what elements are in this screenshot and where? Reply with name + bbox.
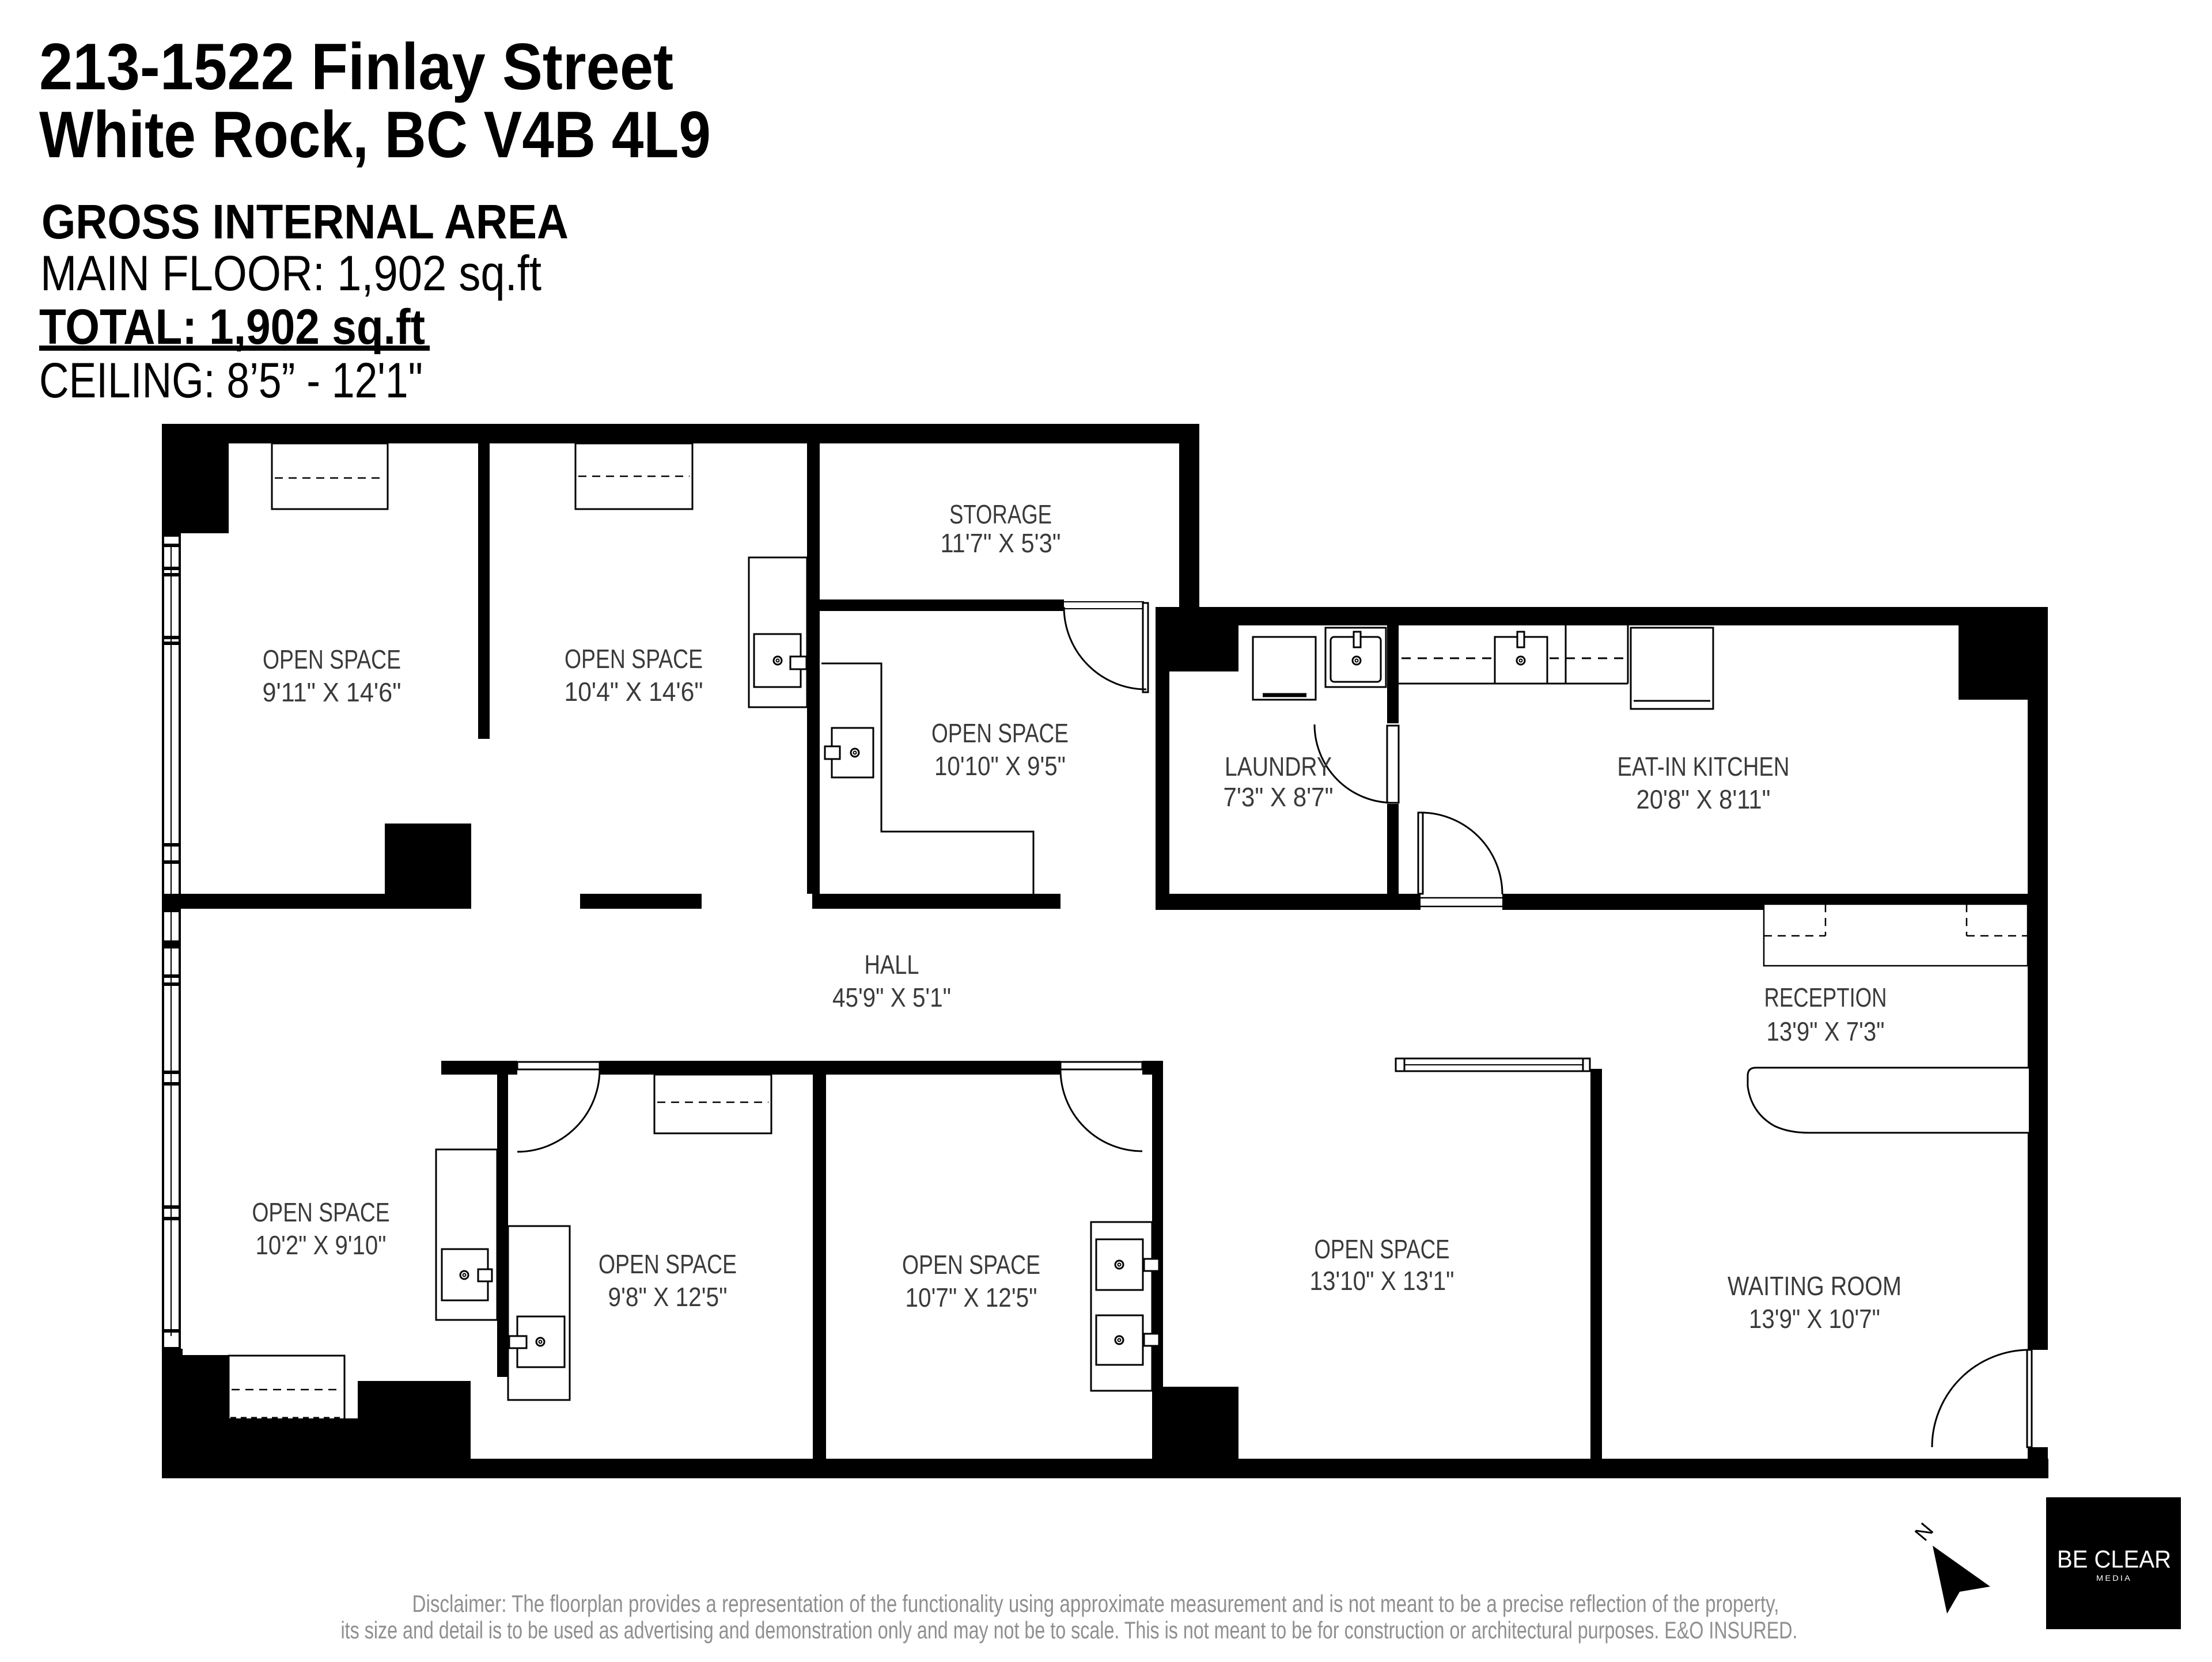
svg-text:13'9" X 7'3": 13'9" X 7'3" <box>1767 1016 1885 1046</box>
svg-text:CEILING: 8’5” - 12'1": CEILING: 8’5” - 12'1" <box>39 353 423 408</box>
svg-text:10'7" X 12'5": 10'7" X 12'5" <box>906 1282 1037 1312</box>
svg-text:GROSS INTERNAL AREA: GROSS INTERNAL AREA <box>41 195 569 249</box>
svg-text:10'2" X 9'10": 10'2" X 9'10" <box>256 1230 387 1260</box>
svg-text:11'7" X 5'3": 11'7" X 5'3" <box>941 528 1061 558</box>
svg-text:10'10" X 9'5": 10'10" X 9'5" <box>934 751 1066 781</box>
svg-text:its size and detail is to be u: its size and detail is to be used as adv… <box>341 1617 1798 1644</box>
svg-text:MAIN FLOOR: 1,902 sq.ft: MAIN FLOOR: 1,902 sq.ft <box>40 246 541 301</box>
svg-text:OPEN SPACE: OPEN SPACE <box>599 1249 737 1279</box>
svg-text:9'8" X 12'5": 9'8" X 12'5" <box>608 1282 728 1312</box>
svg-text:BE CLEAR: BE CLEAR <box>2057 1546 2171 1573</box>
svg-text:13'10" X 13'1": 13'10" X 13'1" <box>1310 1266 1455 1296</box>
svg-text:RECEPTION: RECEPTION <box>1764 982 1887 1012</box>
svg-text:213-1522 Finlay Street: 213-1522 Finlay Street <box>39 31 673 104</box>
svg-text:STORAGE: STORAGE <box>949 499 1052 529</box>
svg-text:Disclaimer: The floorplan prov: Disclaimer: The floorplan provides a rep… <box>412 1590 1779 1617</box>
svg-text:HALL: HALL <box>865 950 919 980</box>
svg-text:LAUNDRY: LAUNDRY <box>1225 752 1332 781</box>
svg-text:OPEN SPACE: OPEN SPACE <box>565 644 703 674</box>
svg-text:OPEN SPACE: OPEN SPACE <box>902 1250 1040 1280</box>
svg-text:45'9" X 5'1": 45'9" X 5'1" <box>832 982 951 1012</box>
svg-text:EAT-IN KITCHEN: EAT-IN KITCHEN <box>1618 752 1790 781</box>
svg-text:WAITING ROOM: WAITING ROOM <box>1728 1271 1902 1301</box>
svg-text:White Rock, BC V4B 4L9: White Rock, BC V4B 4L9 <box>39 98 711 172</box>
svg-text:13'9" X 10'7": 13'9" X 10'7" <box>1749 1304 1880 1334</box>
svg-text:OPEN SPACE: OPEN SPACE <box>263 644 401 674</box>
svg-text:9'11" X 14'6": 9'11" X 14'6" <box>263 677 402 707</box>
svg-text:MEDIA: MEDIA <box>2096 1573 2132 1583</box>
svg-text:7'3" X 8'7": 7'3" X 8'7" <box>1224 782 1334 812</box>
svg-text:20'8" X 8'11": 20'8" X 8'11" <box>1637 784 1771 814</box>
svg-text:10'4" X 14'6": 10'4" X 14'6" <box>565 677 703 707</box>
svg-text:OPEN SPACE: OPEN SPACE <box>252 1197 390 1227</box>
svg-text:N: N <box>1910 1519 1938 1546</box>
svg-text:OPEN SPACE: OPEN SPACE <box>931 718 1069 748</box>
svg-text:OPEN SPACE: OPEN SPACE <box>1315 1234 1450 1264</box>
